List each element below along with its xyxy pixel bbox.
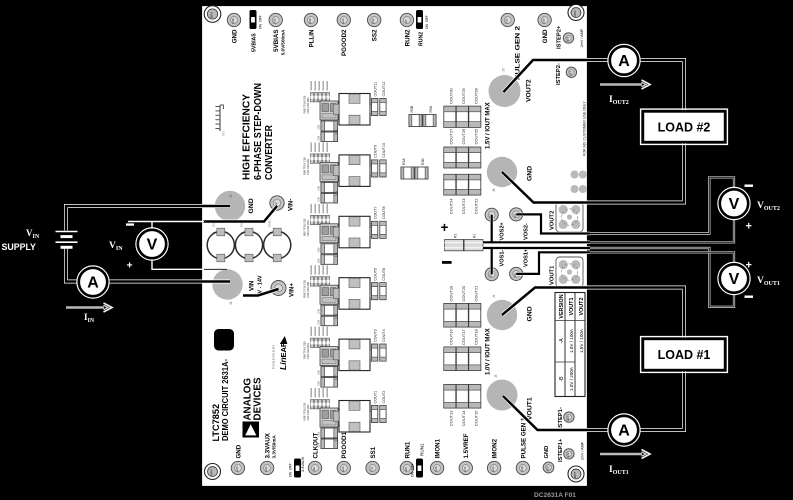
svg-text:J4: J4: [492, 294, 496, 298]
svg-text:5VBIAS: 5VBIAS: [252, 33, 258, 52]
svg-text:COUT14: COUT14: [461, 410, 466, 427]
svg-text:COUT7: COUT7: [374, 206, 378, 219]
svg-text:COUT8: COUT8: [382, 206, 386, 219]
svg-text:VIN-: VIN-: [288, 199, 295, 211]
svg-text:E27: E27: [568, 71, 572, 77]
svg-text:E25: E25: [542, 18, 546, 24]
svg-text:ON OFF: ON OFF: [411, 463, 415, 477]
svg-text:R5A: R5A: [429, 105, 433, 112]
svg-text:V: V: [729, 271, 740, 288]
svg-text:R88 TP16 C85: R88 TP16 C85: [303, 157, 307, 175]
svg-text:R2: R2: [454, 234, 458, 238]
svg-text:VOUT2: VOUT2: [550, 211, 556, 230]
svg-text:DEMO CIRCUIT 2631A-: DEMO CIRCUIT 2631A-: [221, 359, 230, 441]
svg-text:SS2: SS2: [372, 29, 379, 41]
svg-text:COUT20: COUT20: [461, 285, 466, 302]
svg-text:COUT24: COUT24: [448, 198, 453, 215]
svg-text:PGOOD1: PGOOD1: [341, 431, 348, 458]
svg-text:E15: E15: [434, 466, 438, 472]
svg-text:CIN: CIN: [317, 197, 321, 202]
svg-text:L4: L4: [334, 252, 339, 257]
svg-text:E22: E22: [566, 452, 570, 458]
svg-text:GND: GND: [527, 306, 534, 321]
svg-text:J1: J1: [229, 301, 233, 305]
svg-text:MP2: MP2: [573, 10, 577, 17]
svg-text:C93 C83 R91: C93 C83 R91: [306, 404, 310, 421]
svg-text:ON OFF: ON OFF: [259, 15, 263, 29]
svg-text:A: A: [618, 53, 630, 70]
svg-text:C93 C83 R91: C93 C83 R91: [306, 158, 310, 175]
svg-text:GND: GND: [544, 446, 550, 459]
svg-text:V: V: [729, 196, 740, 213]
svg-text:1.0V / 100A: 1.0V / 100A: [569, 328, 574, 353]
svg-text:P O W E R E D B Y: P O W E R E D B Y: [272, 345, 276, 369]
svg-text:COUT5: COUT5: [374, 268, 378, 281]
svg-text:SS1: SS1: [370, 446, 377, 458]
svg-text:L5: L5: [334, 191, 339, 196]
svg-text:A: A: [87, 275, 99, 292]
svg-text:LTC7852: LTC7852: [211, 404, 221, 442]
svg-text:VOUT1: VOUT1: [527, 397, 534, 420]
svg-text:R88 TP16 C85: R88 TP16 C85: [303, 218, 307, 236]
svg-text:VIN: VIN: [249, 280, 256, 291]
svg-text:COUT28: COUT28: [473, 87, 478, 104]
svg-text:E23: E23: [566, 415, 570, 421]
svg-text:COUT12: COUT12: [382, 82, 386, 97]
svg-text:COUT6: COUT6: [382, 268, 386, 281]
svg-text:J5: J5: [502, 68, 506, 72]
svg-text:L3: L3: [334, 313, 339, 318]
svg-text:E14: E14: [341, 18, 345, 24]
svg-text:1.0V / IOUT MAX: 1.0V / IOUT MAX: [486, 328, 492, 375]
svg-text:VOS1-: VOS1-: [500, 250, 506, 267]
svg-text:CIN: CIN: [317, 370, 321, 375]
svg-text:VOS1+: VOS1+: [524, 248, 530, 267]
svg-text:PGOOD2: PGOOD2: [341, 29, 348, 56]
svg-text:VOS2-: VOS2-: [524, 223, 530, 240]
svg-text:5.0V/500mA: 5.0V/500mA: [280, 29, 285, 55]
svg-text:J6: J6: [492, 188, 496, 192]
svg-text:COUT1: COUT1: [374, 391, 378, 404]
svg-text:DEVICES: DEVICES: [253, 377, 264, 420]
svg-text:LOAD #1: LOAD #1: [658, 348, 711, 362]
svg-text:R88 TP16 C85: R88 TP16 C85: [303, 95, 307, 113]
svg-text:COUT13: COUT13: [448, 410, 453, 427]
svg-text:E26: E26: [566, 36, 570, 42]
svg-text:CIN: CIN: [317, 320, 321, 325]
svg-text:E24: E24: [505, 18, 509, 24]
svg-text:COUT2: COUT2: [382, 391, 386, 404]
svg-text:COUT22: COUT22: [473, 198, 478, 215]
svg-text:E7: E7: [404, 19, 408, 23]
svg-text:COUT21: COUT21: [473, 285, 478, 302]
svg-text:VOS2+: VOS2+: [500, 222, 506, 241]
svg-text:ON OFF: ON OFF: [425, 15, 429, 29]
svg-text:E12: E12: [371, 18, 375, 24]
svg-text:3.3VAUX: 3.3VAUX: [265, 432, 272, 458]
svg-text:VOUT2: VOUT2: [526, 79, 533, 102]
svg-text:C6/5: C6/5: [268, 220, 272, 227]
svg-text:5VBIAS: 5VBIAS: [273, 30, 280, 52]
svg-text:-B: -B: [559, 376, 565, 382]
svg-text:VOUT1: VOUT1: [569, 298, 575, 316]
svg-text:+: +: [746, 260, 752, 272]
svg-text:R3B: R3B: [421, 158, 425, 165]
svg-text:VOUT1: VOUT1: [550, 265, 556, 285]
svg-text:COUT26: COUT26: [461, 128, 466, 145]
svg-text:ISTEP2+: ISTEP2+: [557, 25, 563, 49]
svg-text:COUT10: COUT10: [382, 143, 386, 158]
svg-text:MP3: MP3: [210, 12, 214, 19]
svg-text:ISTEP1-: ISTEP1-: [558, 407, 564, 429]
svg-text:ISTEP1+: ISTEP1+: [558, 438, 564, 462]
svg-text:E13: E13: [341, 466, 345, 472]
svg-text:J3: J3: [494, 374, 498, 378]
svg-text:C93 C83 R91: C93 C83 R91: [306, 342, 310, 359]
svg-text:COUT25: COUT25: [473, 128, 478, 145]
svg-text:E14: E14: [491, 466, 495, 472]
svg-text:MP5: MP5: [573, 472, 577, 479]
svg-text:COUT3: COUT3: [374, 329, 378, 342]
svg-text:CONVERTER: CONVERTER: [264, 124, 275, 180]
svg-text:R5B: R5B: [410, 105, 414, 112]
svg-text:C93 C83 R91: C93 C83 R91: [306, 281, 310, 298]
svg-text:RUN2: RUN2: [419, 32, 425, 46]
svg-text:GND: GND: [542, 29, 549, 43]
svg-text:DC2631A F01: DC2631A F01: [534, 492, 576, 499]
svg-text:1.5V / 100A: 1.5V / 100A: [579, 328, 584, 353]
svg-text:E10: E10: [546, 466, 550, 472]
svg-text:COUT19: COUT19: [448, 285, 453, 302]
svg-text:GND: GND: [248, 198, 255, 213]
svg-text:2mV / AMP: 2mV / AMP: [580, 28, 584, 47]
svg-text:CIN: CIN: [317, 259, 321, 264]
svg-text:R3A: R3A: [402, 158, 406, 165]
svg-text:COUT23: COUT23: [461, 198, 466, 215]
svg-text:1.5VREF: 1.5VREF: [463, 433, 470, 458]
svg-text:IMON2: IMON2: [492, 438, 499, 458]
svg-text:+: +: [746, 221, 752, 233]
svg-text:ISTEP2-: ISTEP2-: [556, 63, 562, 85]
svg-text:E11: E11: [370, 466, 374, 472]
svg-text:ON OFF: ON OFF: [289, 463, 293, 477]
svg-text:HIGH EFFCIENCY: HIGH EFFCIENCY: [242, 94, 253, 180]
svg-text:COUT15: COUT15: [473, 410, 478, 427]
svg-text:GND: GND: [235, 444, 242, 458]
svg-text:E28: E28: [231, 18, 235, 24]
svg-text:R88 TP16 C85: R88 TP16 C85: [303, 341, 307, 359]
svg-text:COUT27: COUT27: [448, 128, 453, 145]
svg-text:-A: -A: [559, 338, 565, 344]
svg-text:3.3VAUX: 3.3VAUX: [301, 456, 305, 472]
svg-text:C93 C83 R91: C93 C83 R91: [306, 220, 310, 237]
svg-text:E8: E8: [404, 467, 408, 471]
svg-text:2mV / AMP: 2mV / AMP: [581, 441, 585, 460]
svg-text:VERSION: VERSION: [559, 294, 565, 318]
svg-text:COUT17: COUT17: [461, 328, 466, 345]
svg-text:1.0V / 200A: 1.0V / 200A: [569, 366, 574, 391]
svg-text:Lin: Lin: [278, 357, 288, 370]
svg-text:GND: GND: [527, 166, 534, 181]
svg-text:R1: R1: [473, 234, 477, 238]
svg-text:L2: L2: [334, 375, 339, 380]
svg-text:CIN: CIN: [317, 248, 321, 253]
svg-text:VIN+: VIN+: [289, 283, 296, 297]
svg-text:E16: E16: [273, 18, 277, 24]
svg-text:COUT16: COUT16: [448, 328, 453, 345]
svg-text:E20: E20: [235, 466, 239, 472]
svg-text:E9: E9: [312, 467, 316, 471]
svg-text:CIN: CIN: [317, 381, 321, 386]
svg-text:+: +: [127, 260, 133, 272]
svg-text:COUT11: COUT11: [374, 82, 378, 97]
svg-text:RUN1: RUN1: [420, 443, 425, 456]
svg-text:CIN: CIN: [317, 136, 321, 141]
svg-text:FOR ADI CUSTOMER USE ONLY: FOR ADI CUSTOMER USE ONLY: [583, 101, 587, 156]
svg-text:PULSE GEN 1: PULSE GEN 1: [520, 417, 527, 458]
svg-text:SUPPLY: SUPPLY: [2, 242, 37, 252]
svg-text:V: V: [147, 237, 158, 254]
svg-text:L6: L6: [334, 129, 339, 134]
svg-text:J2: J2: [229, 194, 233, 198]
svg-text:6-PHASE STEP-DOWN: 6-PHASE STEP-DOWN: [253, 83, 264, 180]
svg-text:1.5V / IOUT MAX: 1.5V / IOUT MAX: [486, 102, 492, 149]
svg-text:LOAD #2: LOAD #2: [658, 120, 711, 134]
svg-text:E19: E19: [308, 18, 312, 24]
svg-text:CIN: CIN: [317, 309, 321, 314]
svg-text:CIN: CIN: [317, 432, 321, 437]
svg-text:CIN: CIN: [317, 125, 321, 130]
svg-text:A: A: [618, 423, 630, 440]
svg-text:R88 TP16 C85: R88 TP16 C85: [303, 402, 307, 420]
svg-text:+: +: [441, 220, 449, 235]
svg-text:GND: GND: [231, 29, 238, 43]
svg-text:PLLIN: PLLIN: [308, 29, 315, 47]
svg-text:COUT29: COUT29: [461, 87, 466, 104]
svg-text:RUN2: RUN2: [404, 29, 411, 46]
svg-text:E18: E18: [520, 466, 524, 472]
svg-text:R88 TP16 C85: R88 TP16 C85: [303, 279, 307, 297]
svg-text:COUT4: COUT4: [382, 329, 386, 342]
svg-text:E17: E17: [463, 466, 467, 472]
svg-text:CIN: CIN: [317, 443, 321, 448]
svg-text:TP1: TP1: [222, 131, 226, 136]
svg-text:COUT9: COUT9: [374, 145, 378, 158]
svg-text:IMON1: IMON1: [435, 438, 442, 458]
svg-text:MP4: MP4: [210, 469, 214, 476]
svg-text:C93 C83 R91: C93 C83 R91: [306, 97, 310, 114]
svg-text:CIN: CIN: [317, 186, 321, 191]
svg-text:L1: L1: [334, 436, 339, 441]
svg-text:RUN1: RUN1: [404, 441, 411, 458]
svg-text:3.3V/50mA: 3.3V/50mA: [272, 435, 277, 459]
svg-text:E21: E21: [264, 466, 268, 472]
svg-text:COUT30: COUT30: [448, 87, 453, 104]
svg-text:COUT18: COUT18: [473, 328, 478, 345]
svg-text:VOUT2: VOUT2: [579, 298, 585, 316]
